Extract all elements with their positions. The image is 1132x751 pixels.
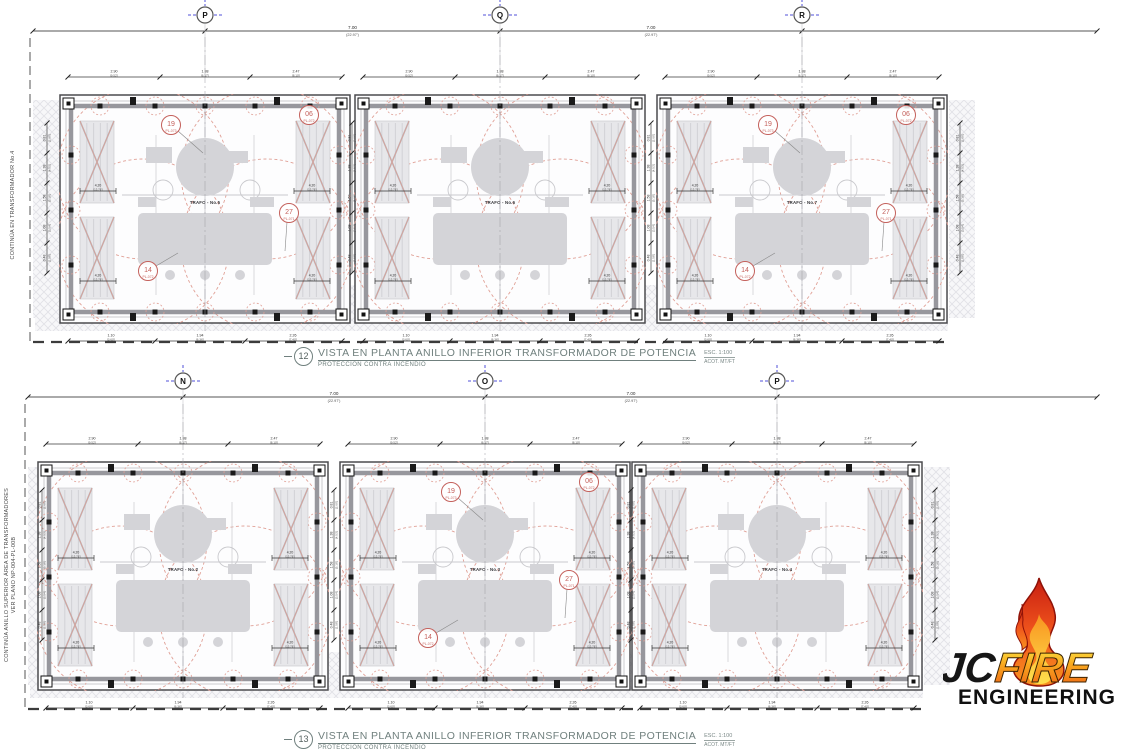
nozzle-node <box>934 208 939 213</box>
column-core <box>340 313 344 317</box>
column-core <box>620 680 624 684</box>
equipment-box <box>124 514 150 530</box>
side-dim-m: 0.81 <box>627 502 631 509</box>
logo-fire-text: FIRE <box>993 644 1095 691</box>
side-dim-m: 0.48 <box>43 255 47 262</box>
stub-dim-ft: [13.78'] <box>71 644 81 648</box>
view-title-12: 12 VISTA EN PLANTA ANILLO INFERIOR TRANS… <box>284 347 735 368</box>
nozzle-node <box>548 104 553 109</box>
wall-column <box>554 680 560 688</box>
callout-tag: PL-071 <box>564 584 575 588</box>
side-note-line: VER PLANO NP-004-PL-00B <box>11 450 18 700</box>
stub-dim-ft: [13.78'] <box>388 187 398 191</box>
equipment-box <box>743 147 769 163</box>
edge-dim-ft: [6.17'] <box>481 441 489 445</box>
nozzle-node <box>47 630 52 635</box>
view-subtitle-text: PROTECCIÓN CONTRA INCENDIO <box>318 745 696 751</box>
stub-dim-ft: [13.78'] <box>690 187 700 191</box>
side-dim-m: 1.08 <box>348 225 352 232</box>
equipment-box <box>138 197 156 207</box>
side-dim-ft: [3.54'] <box>353 224 357 232</box>
stub-dim-ft: [13.78'] <box>93 277 103 281</box>
view-number-bubble: 13 <box>294 730 313 749</box>
nozzle-node <box>253 104 258 109</box>
scale-note: ESC. 1:100 ACOT. MT/FT <box>704 733 735 748</box>
equipment-box <box>228 151 248 163</box>
grid-bubble-P: P <box>188 0 222 23</box>
grid-letter: R <box>799 11 805 20</box>
side-dim-ft: [2.66'] <box>652 134 656 142</box>
nozzle-node <box>909 575 914 580</box>
wall-column <box>425 313 431 321</box>
edge-dim-ft: [7.40'] <box>569 705 577 709</box>
wall-column <box>871 313 877 321</box>
side-dim-m: 1.58 <box>627 562 631 569</box>
edge-dim-ft: [6.36'] <box>174 705 182 709</box>
grid-bubble-O: O <box>468 365 502 389</box>
side-dim-ft: [4.53'] <box>961 164 965 172</box>
equipment-box <box>146 147 172 163</box>
side-dim-ft: [2.66'] <box>632 501 636 509</box>
side-dim-ft: [1.58'] <box>48 254 52 262</box>
nozzle-node <box>393 310 398 315</box>
stub-dim-ft: [13.78'] <box>904 187 914 191</box>
bushing <box>832 270 842 280</box>
nozzle-node <box>632 208 637 213</box>
column-core <box>362 313 366 317</box>
nozzle-node <box>725 471 730 476</box>
nozzle-node <box>670 677 675 682</box>
nozzle-node <box>695 310 700 315</box>
wall-column <box>727 313 733 321</box>
nozzle-node <box>666 208 671 213</box>
nozzle-node <box>131 677 136 682</box>
nozzle-node <box>666 263 671 268</box>
side-dim-ft: [3.54'] <box>961 224 965 232</box>
equipment-box <box>710 564 728 574</box>
callout-number: 27 <box>882 209 890 216</box>
column-core <box>67 102 71 106</box>
nozzle-node <box>603 104 608 109</box>
callout-tag: PL-072 <box>740 275 751 279</box>
company-logo: JC FIRE ENGINEERING <box>943 576 1131 708</box>
wall-column <box>702 464 708 472</box>
side-dim-m: 1.58 <box>38 562 42 569</box>
side-dim-m: 1.58 <box>647 195 651 202</box>
edge-dim-ft: [3.60'] <box>402 338 410 342</box>
edge-dim-ft: [6.36'] <box>196 338 204 342</box>
side-dim-m: 1.38 <box>931 532 935 539</box>
side-dim-ft: [1.58'] <box>936 621 940 629</box>
main-dim-m: 7.00 <box>647 25 656 30</box>
stub-dim-ft: [13.78'] <box>373 554 383 558</box>
bushing <box>143 637 153 647</box>
logo-jc-text: JC <box>943 644 998 691</box>
callout-tag: PL-072 <box>143 275 154 279</box>
column-core <box>347 680 351 684</box>
side-dim-ft: [1.58'] <box>335 621 339 629</box>
column-core <box>45 469 49 473</box>
stub-dim-ft: [13.78'] <box>602 277 612 281</box>
nozzle-node <box>750 104 755 109</box>
side-dim-m: 1.08 <box>330 592 334 599</box>
nozzle-node <box>617 630 622 635</box>
edge-dim-ft: [9.52'] <box>110 74 118 78</box>
nozzle-node <box>69 153 74 158</box>
nozzle-node <box>632 263 637 268</box>
stub-dim-ft: [13.78'] <box>93 187 103 191</box>
nozzle-node <box>670 471 675 476</box>
stub-dim-ft: [13.78'] <box>879 554 889 558</box>
side-dim-m: 1.38 <box>348 165 352 172</box>
side-dim-ft: [4.53'] <box>48 164 52 172</box>
edge-dim-ft: [6.36'] <box>768 705 776 709</box>
side-dim-m: 1.38 <box>647 165 651 172</box>
side-dim-m: 1.38 <box>38 532 42 539</box>
callout-06: 06PL-072 <box>580 473 599 492</box>
column-core <box>635 102 639 106</box>
nozzle-node <box>231 471 236 476</box>
nozzle-node <box>850 310 855 315</box>
nozzle-node <box>76 471 81 476</box>
stub-dim-ft: [13.78'] <box>665 554 675 558</box>
grid-letter: P <box>202 11 208 20</box>
grid-letter: N <box>180 377 186 386</box>
wall-column <box>727 97 733 105</box>
transformer-bay: 4.20[13.78']4.20[13.78']4.20[13.78']4.20… <box>352 37 648 344</box>
side-dim-ft: [4.53'] <box>632 531 636 539</box>
side-dim-ft: [3.54'] <box>335 591 339 599</box>
nozzle-node <box>337 153 342 158</box>
side-dim-m: 0.48 <box>330 622 334 629</box>
nozzle-node <box>349 630 354 635</box>
bushing <box>165 270 175 280</box>
equipment-box <box>545 197 569 207</box>
wall-column <box>252 464 258 472</box>
callout-number: 27 <box>565 576 573 583</box>
nozzle-node <box>337 208 342 213</box>
nozzle-node <box>286 471 291 476</box>
side-dim-ft: [1.58'] <box>353 254 357 262</box>
side-dim-m: 0.81 <box>330 502 334 509</box>
side-dim-ft: [1.58'] <box>961 254 965 262</box>
equipment-box <box>418 564 436 574</box>
column-core <box>67 313 71 317</box>
nozzle-node <box>880 471 885 476</box>
view-title-13: 13 VISTA EN PLANTA ANILLO INFERIOR TRANS… <box>284 730 735 751</box>
side-dim-m: 1.58 <box>348 195 352 202</box>
side-dim-ft: [1.58'] <box>652 254 656 262</box>
nozzle-node <box>641 575 646 580</box>
column-core <box>620 469 624 473</box>
column-core <box>912 680 916 684</box>
edge-dim-ft: [8.10'] <box>292 74 300 78</box>
side-dim-m: 0.48 <box>956 255 960 262</box>
edge-dim-ft: [9.52'] <box>390 441 398 445</box>
edge-dim-ft: [7.40'] <box>267 705 275 709</box>
side-dim-m: 0.81 <box>38 502 42 509</box>
equipment-box <box>206 518 226 530</box>
main-dim-m: 7.00 <box>330 391 339 396</box>
main-dim-ft: (22.97') <box>346 33 359 37</box>
transformer-bay: 4.20[13.78']4.20[13.78']4.20[13.78']4.20… <box>629 404 925 711</box>
side-dim-ft: [5.18'] <box>48 194 52 202</box>
wall-column <box>554 464 560 472</box>
nozzle-node <box>880 677 885 682</box>
nozzle-node <box>153 310 158 315</box>
side-dim-ft: [3.54'] <box>652 224 656 232</box>
wall-column <box>274 97 280 105</box>
nozzle-node <box>909 520 914 525</box>
nozzle-node <box>617 575 622 580</box>
side-note-12: CONTINÚA EN TRANSFORMADOR No.4 <box>10 80 17 330</box>
column-core <box>937 102 941 106</box>
nozzle-node <box>315 630 320 635</box>
side-dim-ft: [2.66'] <box>335 501 339 509</box>
side-dim-ft: [2.66'] <box>48 134 52 142</box>
side-dim-m: 1.58 <box>956 195 960 202</box>
nozzle-node <box>934 263 939 268</box>
wall-column <box>252 680 258 688</box>
callout-number: 06 <box>305 111 313 118</box>
nozzle-node <box>448 310 453 315</box>
scale-value: ESC. 1:100 <box>704 350 735 358</box>
column-core <box>340 102 344 106</box>
transformer-bay: 4.20[13.78']4.20[13.78']4.20[13.78']4.20… <box>654 37 950 344</box>
nozzle-node <box>364 263 369 268</box>
side-dim-ft: [4.53'] <box>335 531 339 539</box>
side-dim-ft: [2.66'] <box>936 501 940 509</box>
side-dim-m: 0.48 <box>931 622 935 629</box>
callout-27: 27PL-071 <box>280 204 299 223</box>
nozzle-node <box>153 104 158 109</box>
nozzle-node <box>349 520 354 525</box>
edge-dim-ft: [6.36'] <box>491 338 499 342</box>
side-dim-m: 1.58 <box>931 562 935 569</box>
edge-dim-ft: [3.60'] <box>679 705 687 709</box>
nozzle-node <box>433 471 438 476</box>
column-core <box>362 102 366 106</box>
nozzle-node <box>378 677 383 682</box>
scale-note: ESC. 1:100 ACOT. MT/FT <box>704 350 735 365</box>
callout-number: 19 <box>167 121 175 128</box>
equipment-box <box>523 151 543 163</box>
equipment-box <box>800 518 820 530</box>
side-dim-ft: [5.18'] <box>43 561 47 569</box>
edge-dim-ft: [6.17'] <box>773 441 781 445</box>
callout-06: 06PL-072 <box>300 106 319 125</box>
edge-dim-ft: [6.17'] <box>496 74 504 78</box>
plan-view-13: NOP7.00(22.97')7.00(22.97')4.20[13.78']4… <box>25 365 1100 711</box>
wall-column <box>425 97 431 105</box>
column-core <box>639 680 643 684</box>
grid-bubble-N: N <box>166 365 200 389</box>
edge-dim-ft: [7.40'] <box>861 705 869 709</box>
edge-dim-ft: [8.10'] <box>864 441 872 445</box>
callout-number: 14 <box>144 267 152 274</box>
callout-27: 27PL-071 <box>877 204 896 223</box>
callout-number: 27 <box>285 209 293 216</box>
main-dim-m: 7.00 <box>348 25 357 30</box>
nozzle-node <box>533 677 538 682</box>
callout-tag: PL-073 <box>166 129 177 133</box>
side-dim-m: 0.48 <box>647 255 651 262</box>
equipment-box <box>250 197 274 207</box>
bushing <box>235 270 245 280</box>
equipment-box <box>433 197 451 207</box>
side-dim-m: 1.38 <box>330 532 334 539</box>
nozzle-node <box>378 471 383 476</box>
side-note-line: CONTINÚA EN TRANSFORMADOR No.4 <box>10 80 17 330</box>
nozzle-node <box>641 520 646 525</box>
nozzle-node <box>905 310 910 315</box>
stub-dim-ft: [13.78'] <box>285 554 295 558</box>
callout-19: 19PL-073 <box>162 116 181 135</box>
side-dim-chain: 0.81[2.66']1.38[4.53']1.58[5.18']1.08[3.… <box>647 121 656 276</box>
stub-dim-ft: [13.78'] <box>373 644 383 648</box>
side-dim-ft: [4.53'] <box>652 164 656 172</box>
callout-tag: PL-072 <box>304 119 315 123</box>
callout-tag: PL-071 <box>881 217 892 221</box>
nozzle-node <box>448 104 453 109</box>
callout-19: 19PL-073 <box>759 116 778 135</box>
stub-dim-ft: [13.78'] <box>587 644 597 648</box>
side-dim-m: 0.48 <box>38 622 42 629</box>
edge-dim-ft: [6.17'] <box>201 74 209 78</box>
stub-dim-ft: [13.78'] <box>879 644 889 648</box>
side-dim-ft: [2.66'] <box>43 501 47 509</box>
nozzle-node <box>588 677 593 682</box>
edge-dim-ft: [3.60'] <box>85 705 93 709</box>
callout-06: 06PL-072 <box>897 106 916 125</box>
column-core <box>664 102 668 106</box>
column-core <box>639 469 643 473</box>
wall-column <box>846 464 852 472</box>
edge-dim-ft: [8.10'] <box>587 74 595 78</box>
side-dim-m: 1.38 <box>43 165 47 172</box>
wall-column <box>108 680 114 688</box>
edge-dim-ft: [3.60'] <box>387 705 395 709</box>
callout-number: 06 <box>902 111 910 118</box>
transformer-bay: 4.20[13.78']4.20[13.78']4.20[13.78']4.20… <box>57 37 353 344</box>
nozzle-node <box>909 630 914 635</box>
edge-dim-ft: [7.40'] <box>886 338 894 342</box>
bushing <box>530 270 540 280</box>
side-dim-ft: [5.18'] <box>353 194 357 202</box>
stub-dim-ft: [13.78'] <box>665 644 675 648</box>
nozzle-node <box>850 104 855 109</box>
nozzle-node <box>666 153 671 158</box>
nozzle-node <box>617 520 622 525</box>
side-dim-ft: [4.53'] <box>43 531 47 539</box>
stub-dim-ft: [13.78'] <box>587 554 597 558</box>
wall-column <box>569 97 575 105</box>
side-dim-ft: [5.18'] <box>961 194 965 202</box>
edge-dim-ft: [7.40'] <box>584 338 592 342</box>
nozzle-node <box>632 153 637 158</box>
gravel-hatch <box>33 100 59 318</box>
main-dim-ft: (22.97') <box>645 33 658 37</box>
column-core <box>937 313 941 317</box>
nozzle-node <box>47 520 52 525</box>
callout-tag: PL-073 <box>446 496 457 500</box>
wall-column <box>702 680 708 688</box>
callout-14: 14PL-072 <box>419 629 438 648</box>
side-dim-m: 0.48 <box>627 622 631 629</box>
nozzle-node <box>750 310 755 315</box>
side-note-13: CONTINÚA ANILLO SUPERIOR ÁREA DE TRANSFO… <box>4 450 17 700</box>
side-dim-m: 0.48 <box>348 255 352 262</box>
column-core <box>318 680 322 684</box>
scale-value: ESC. 1:100 <box>704 733 735 741</box>
edge-dim-ft: [6.17'] <box>179 441 187 445</box>
equipment-box <box>508 518 528 530</box>
bushing <box>515 637 525 647</box>
wall-column <box>130 97 136 105</box>
edge-dim-ft: [3.60'] <box>704 338 712 342</box>
side-dim-m: 1.58 <box>43 195 47 202</box>
nozzle-node <box>533 471 538 476</box>
side-dim-chain: 0.81[2.66']1.38[4.53']1.58[5.18']1.08[3.… <box>330 488 339 643</box>
column-core <box>347 469 351 473</box>
callout-tag: PL-071 <box>284 217 295 221</box>
side-dim-ft: [2.66'] <box>353 134 357 142</box>
stub-dim-ft: [13.78'] <box>307 187 317 191</box>
equipment-box <box>822 564 846 574</box>
grid-bubble-R: R <box>785 0 819 23</box>
column-core <box>635 313 639 317</box>
column-core <box>664 313 668 317</box>
edge-dim-ft: [6.17'] <box>798 74 806 78</box>
column-core <box>912 469 916 473</box>
callout-tag: PL-072 <box>584 486 595 490</box>
edge-dim-ft: [8.10'] <box>889 74 897 78</box>
edge-dim-ft: [9.52'] <box>405 74 413 78</box>
side-dim-m: 1.08 <box>38 592 42 599</box>
view-title-text: VISTA EN PLANTA ANILLO INFERIOR TRANSFOR… <box>318 347 696 361</box>
wall-column <box>130 313 136 321</box>
side-dim-ft: [5.18'] <box>335 561 339 569</box>
side-dim-ft: [1.58'] <box>43 621 47 629</box>
side-dim-ft: [2.66'] <box>961 134 965 142</box>
equipment-box <box>718 514 744 530</box>
wall-column <box>410 464 416 472</box>
bushing <box>213 637 223 647</box>
side-dim-ft: [1.58'] <box>632 621 636 629</box>
nozzle-node <box>695 104 700 109</box>
title-dash <box>284 739 292 740</box>
wall-column <box>871 97 877 105</box>
callout-tag: PL-073 <box>763 129 774 133</box>
column-core <box>45 680 49 684</box>
view-number-bubble: 12 <box>294 347 313 366</box>
wall-column <box>410 680 416 688</box>
callout-number: 14 <box>741 267 749 274</box>
nozzle-node <box>231 677 236 682</box>
stub-dim-ft: [13.78'] <box>71 554 81 558</box>
nozzle-node <box>315 575 320 580</box>
nozzle-node <box>433 677 438 682</box>
equipment-box <box>825 151 845 163</box>
main-dim-ft: (22.97') <box>625 399 638 403</box>
nozzle-node <box>393 104 398 109</box>
side-dim-m: 1.38 <box>627 532 631 539</box>
edge-dim-ft: [7.40'] <box>289 338 297 342</box>
callout-number: 06 <box>585 478 593 485</box>
nozzle-node <box>364 208 369 213</box>
edge-dim-ft: [9.52'] <box>707 74 715 78</box>
callout-tag: PL-072 <box>901 119 912 123</box>
